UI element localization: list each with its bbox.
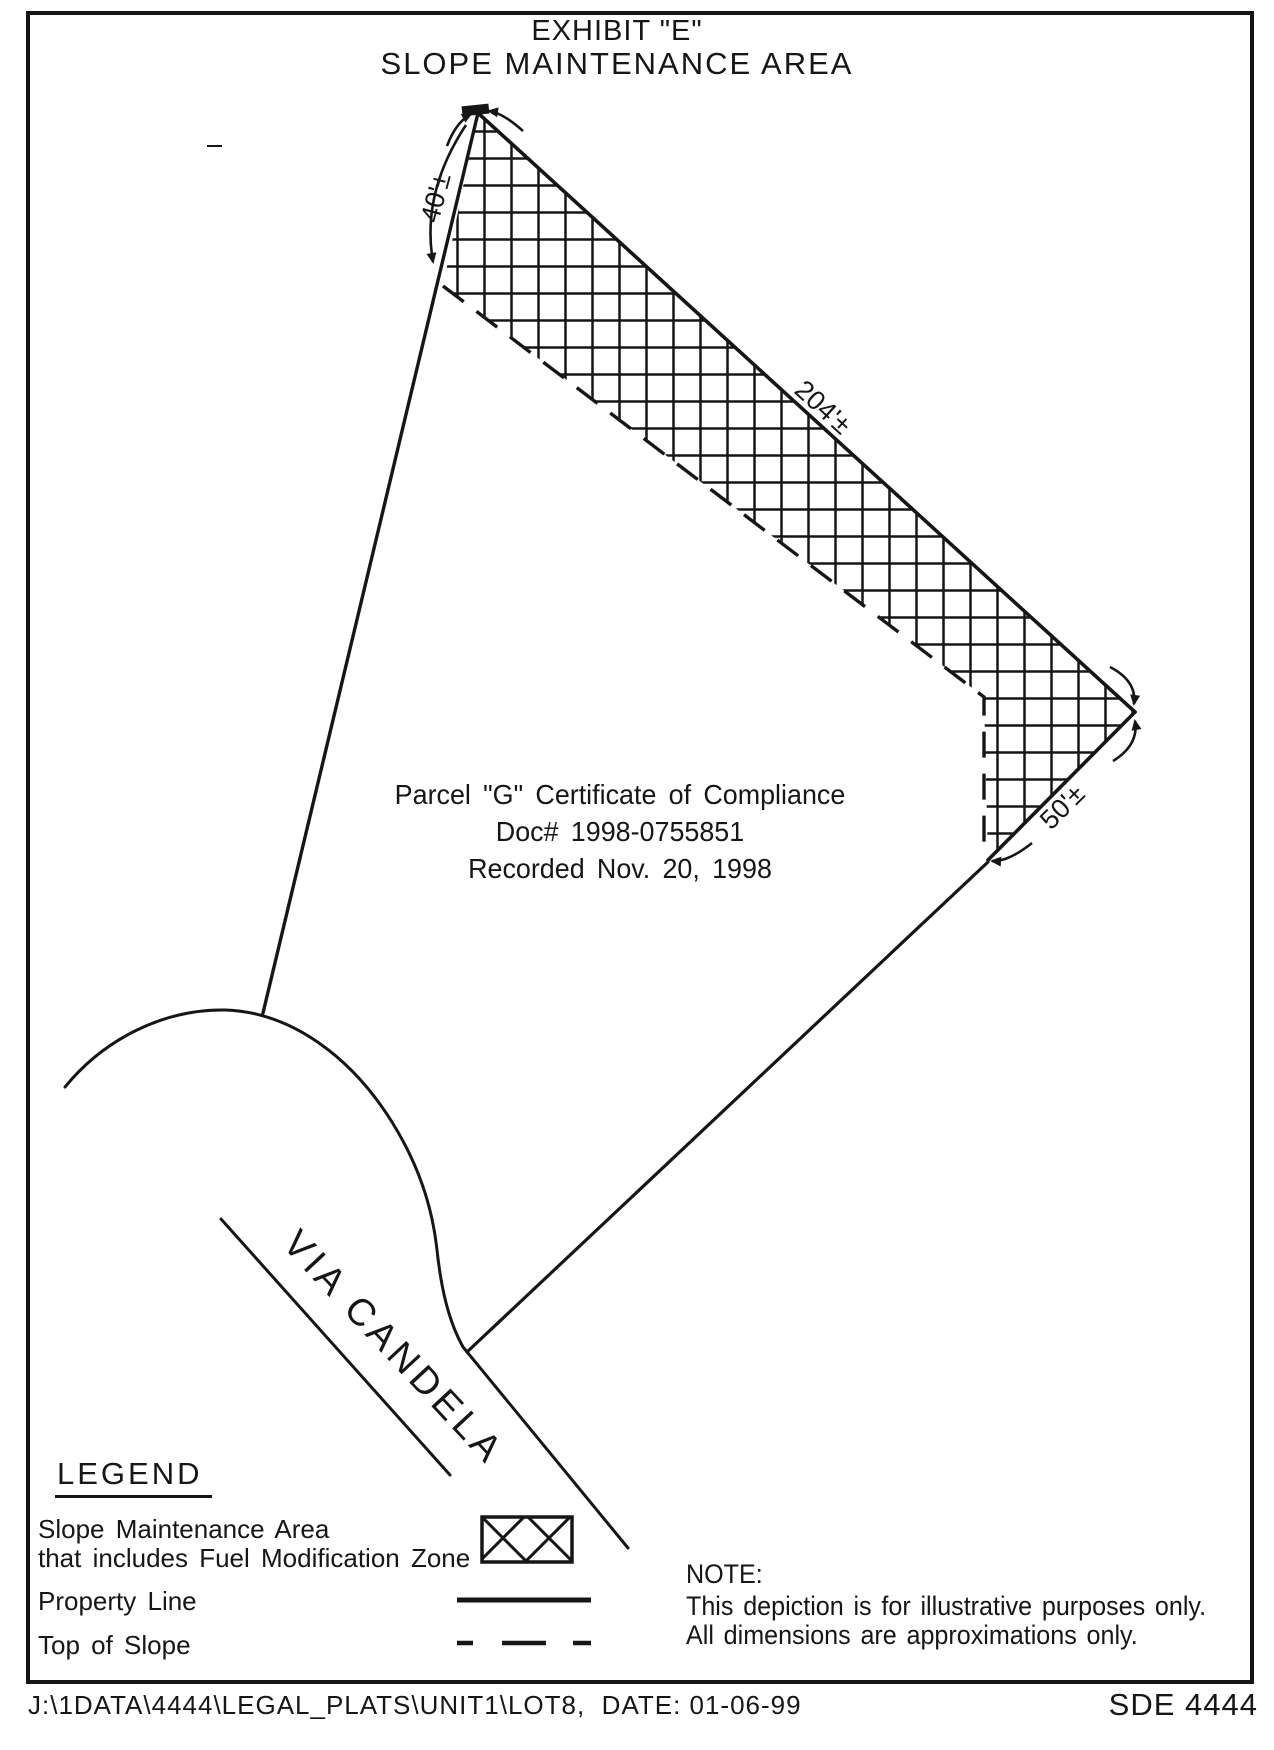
note-block: NOTE: This depiction is for illustrative…	[686, 1560, 1245, 1650]
property-line-bottom	[467, 862, 988, 1352]
legend-item-slope-label-line2: that includes Fuel Modification Zone	[38, 1543, 470, 1574]
dimension-arc-40-apex	[447, 114, 471, 146]
legend-item-slope-label-line1: Slope Maintenance Area	[38, 1514, 329, 1545]
note-heading: NOTE:	[686, 1560, 1206, 1589]
legend-heading: LEGEND	[55, 1456, 212, 1498]
note-line2: All dimensions are approximations only.	[686, 1621, 1206, 1650]
note-line1: This depiction is for illustrative purpo…	[686, 1592, 1206, 1621]
legend-item-property-line-label: Property Line	[38, 1586, 197, 1617]
parcel-info-line1: Parcel "G" Certificate of Compliance	[25, 776, 1215, 813]
apex-marker	[462, 104, 490, 117]
top-of-slope-swatch	[457, 1639, 591, 1647]
dimension-label-40ft: 40'±	[415, 169, 457, 225]
plat-document-page: EXHIBIT "E" SLOPE MAINTENANCE AREA	[0, 0, 1274, 1750]
property-line-204	[478, 113, 1135, 712]
footer-sheet-id: SDE 4444	[1109, 1687, 1258, 1723]
parcel-info: Parcel "G" Certificate of Compliance Doc…	[0, 776, 1240, 887]
parcel-info-line3: Recorded Nov. 20, 1998	[25, 850, 1215, 887]
parcel-info-line2: Doc# 1998-0755851	[25, 813, 1215, 850]
property-line-swatch	[457, 1596, 591, 1604]
legend-item-top-of-slope-label: Top of Slope	[38, 1630, 191, 1661]
slope-maintenance-hatch-area	[443, 113, 1135, 860]
street-name-label: VIA CANDELA	[274, 1222, 512, 1473]
crosshatch-swatch	[480, 1515, 574, 1564]
footer-file-path: J:\1DATA\4444\LEGAL_PLATS\UNIT1\LOT8, DA…	[28, 1690, 802, 1721]
